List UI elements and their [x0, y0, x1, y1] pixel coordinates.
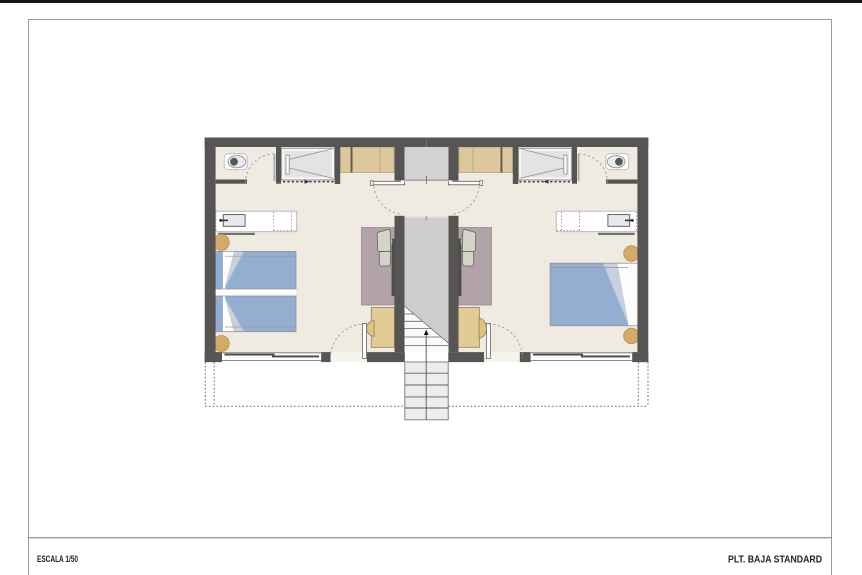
svg-text:PLT. BAJA STANDARD: PLT. BAJA STANDARD — [728, 555, 822, 566]
svg-text:ESCALA 1/50: ESCALA 1/50 — [37, 554, 78, 564]
